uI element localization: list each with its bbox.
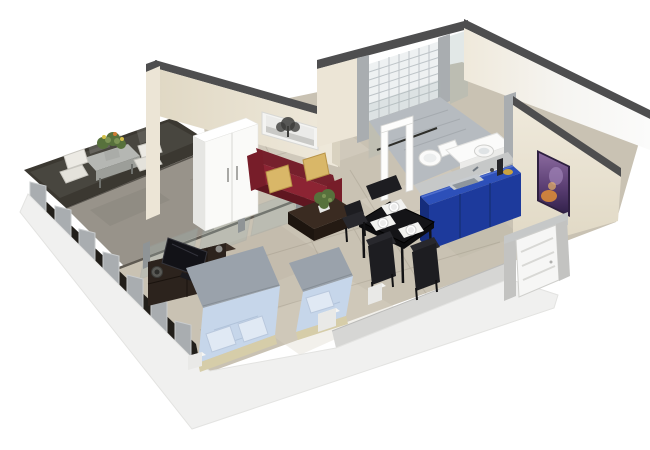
- plant-foliage-light: [114, 138, 120, 144]
- cabinet-knob: [216, 246, 223, 253]
- tree-crown: [290, 122, 300, 132]
- speaker-cone: [155, 270, 160, 275]
- floorplan-render: 3D isometric cutaway floor plan renderin…: [0, 0, 650, 450]
- basin-inner: [479, 148, 490, 154]
- plant-flower: [120, 137, 124, 141]
- wardrobe-handle: [236, 166, 238, 180]
- plant-foliage: [319, 199, 329, 209]
- bath-pillar: [357, 55, 369, 143]
- plant-flower: [102, 135, 106, 139]
- counter-item: [490, 168, 494, 172]
- door-knob: [550, 261, 553, 264]
- bath-wall-cream: [317, 57, 361, 147]
- toilet-seat: [424, 154, 437, 163]
- floorplan-canvas: 3D isometric cutaway floor plan renderin…: [0, 0, 650, 450]
- door-jamb-left: [504, 240, 516, 301]
- art-orange-blob: [541, 190, 557, 202]
- plant-foliage-light: [328, 198, 332, 202]
- wardrobe-side: [193, 136, 205, 231]
- partition-wall-strip: [146, 66, 160, 220]
- tree-crown: [276, 122, 286, 132]
- counter-bottle: [497, 158, 503, 176]
- art-glow: [548, 182, 556, 190]
- plant-flower: [113, 132, 117, 136]
- wardrobe: [193, 118, 258, 231]
- plant-foliage-light: [322, 194, 326, 198]
- counter-dish: [503, 169, 513, 175]
- plant-foliage-light: [105, 137, 111, 143]
- wardrobe-handle: [227, 168, 229, 182]
